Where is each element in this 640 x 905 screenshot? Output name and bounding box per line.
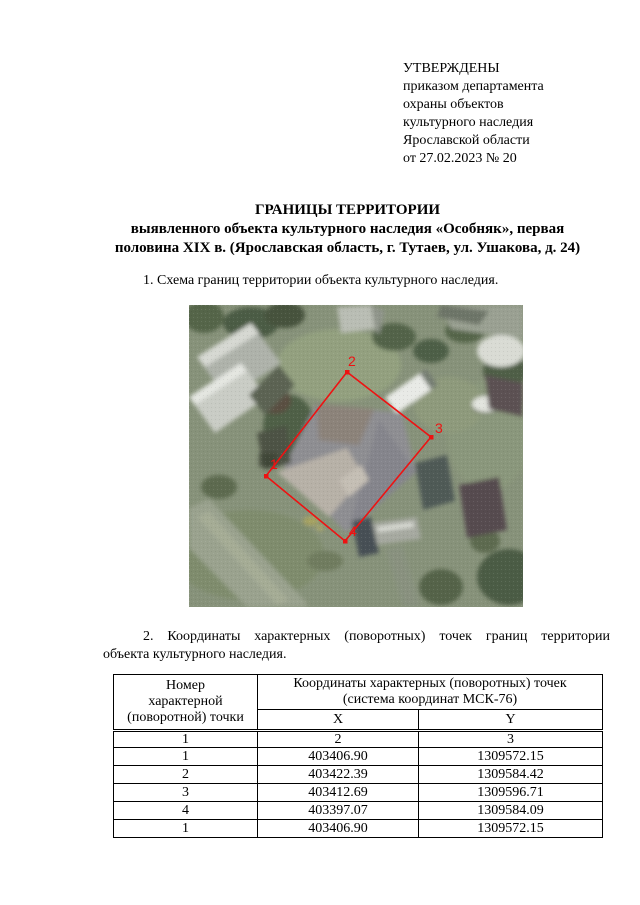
- document-page: УТВЕРЖДЕНЫ приказом департамента охраны …: [0, 0, 640, 905]
- point-label-1: 1: [270, 456, 278, 472]
- boundary-point-1: [264, 474, 269, 479]
- approval-block: УТВЕРЖДЕНЫ приказом департамента охраны …: [403, 60, 618, 168]
- approval-line: охраны объектов: [403, 96, 618, 114]
- coordinate-y: 1309584.09: [419, 802, 603, 820]
- point-label-3: 3: [435, 420, 443, 436]
- table-row: 1 403406.90 1309572.15: [114, 748, 603, 766]
- title-line: ГРАНИЦЫ ТЕРРИТОРИИ: [85, 201, 610, 220]
- section-1-heading: 1. Схема границ территории объекта культ…: [103, 272, 610, 290]
- section-2-line-1: 2. Координаты характерных (поворотных) т…: [103, 628, 610, 646]
- approval-line: от 27.02.2023 № 20: [403, 150, 618, 168]
- table-numbering-row: 1 2 3: [114, 731, 603, 748]
- table-header-row: Номер характерной (поворотной) точки Коо…: [114, 675, 603, 710]
- section-2-line-2: объекта культурного наследия.: [103, 646, 610, 664]
- col-header-y: Y: [419, 710, 603, 731]
- map-image: 1 2 3 4: [189, 305, 523, 607]
- col-header-coordinates: Координаты характерных (поворотных) точе…: [258, 675, 603, 710]
- coordinate-x: 403406.90: [258, 748, 419, 766]
- col-header-x: X: [258, 710, 419, 731]
- grain-overlay: [189, 305, 523, 607]
- point-number: 1: [114, 820, 258, 838]
- document-title: ГРАНИЦЫ ТЕРРИТОРИИ выявленного объекта к…: [85, 201, 610, 258]
- coordinates-table: Номер характерной (поворотной) точки Коо…: [113, 674, 603, 838]
- approval-line: Ярославской области: [403, 132, 618, 150]
- boundary-point-3: [429, 435, 434, 440]
- point-number: 2: [114, 766, 258, 784]
- col-header-point-number: Номер характерной (поворотной) точки: [114, 675, 258, 731]
- coordinate-x: 403412.69: [258, 784, 419, 802]
- coordinate-y: 1309584.42: [419, 766, 603, 784]
- table-row: 1 403406.90 1309572.15: [114, 820, 603, 838]
- approval-line: приказом департамента: [403, 78, 618, 96]
- section-2-heading: 2. Координаты характерных (поворотных) т…: [103, 628, 610, 664]
- coordinate-y: 1309572.15: [419, 820, 603, 838]
- approval-line: культурного наследия: [403, 114, 618, 132]
- boundary-point-2: [345, 370, 350, 375]
- boundary-point-4: [343, 539, 348, 544]
- point-number: 4: [114, 802, 258, 820]
- point-label-4: 4: [349, 523, 357, 539]
- point-number: 1: [114, 748, 258, 766]
- table-row: 2 403422.39 1309584.42: [114, 766, 603, 784]
- approval-line: УТВЕРЖДЕНЫ: [403, 60, 618, 78]
- coordinate-y: 1309572.15: [419, 748, 603, 766]
- coordinate-x: 403397.07: [258, 802, 419, 820]
- table-row: 4 403397.07 1309584.09: [114, 802, 603, 820]
- title-line: выявленного объекта культурного наследия…: [85, 220, 610, 239]
- title-line: половина XIX в. (Ярославская область, г.…: [85, 239, 610, 258]
- table-row: 3 403412.69 1309596.71: [114, 784, 603, 802]
- coordinate-x: 403406.90: [258, 820, 419, 838]
- coordinate-y: 1309596.71: [419, 784, 603, 802]
- point-label-2: 2: [348, 353, 356, 369]
- coordinate-x: 403422.39: [258, 766, 419, 784]
- satellite-scheme: 1 2 3 4: [189, 305, 523, 607]
- point-number: 3: [114, 784, 258, 802]
